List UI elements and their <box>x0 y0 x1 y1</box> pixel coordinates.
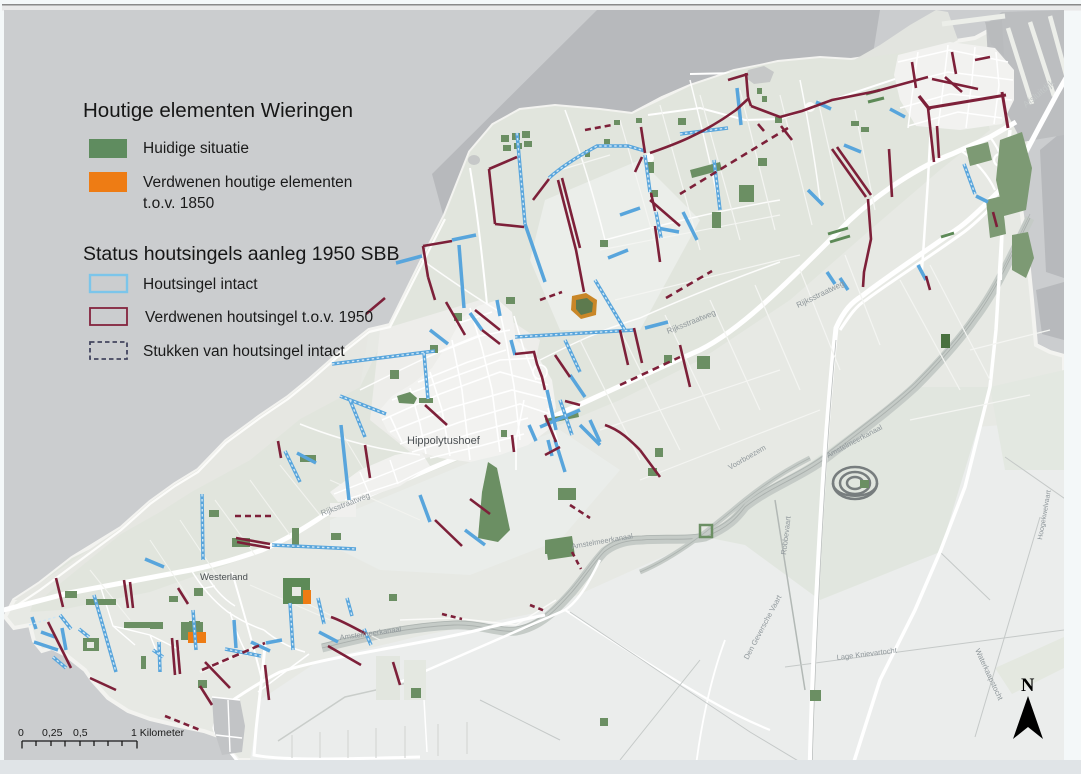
svg-text:Houtsingel intact: Houtsingel intact <box>143 276 258 293</box>
svg-text:Stukken van houtsingel intact: Stukken van houtsingel intact <box>143 343 345 360</box>
svg-text:0,5: 0,5 <box>73 727 88 739</box>
svg-text:t.o.v. 1850: t.o.v. 1850 <box>143 195 215 212</box>
svg-text:0: 0 <box>18 727 24 739</box>
svg-text:Status houtsingels aanleg 1950: Status houtsingels aanleg 1950 SBB <box>83 243 400 265</box>
svg-text:Houtige elementen Wieringen: Houtige elementen Wieringen <box>83 99 353 122</box>
svg-text:Westerland: Westerland <box>200 572 248 583</box>
svg-text:0,25: 0,25 <box>42 727 63 739</box>
svg-text:Huidige situatie: Huidige situatie <box>143 140 249 157</box>
svg-text:N: N <box>1021 676 1035 696</box>
svg-text:Verdwenen houtige elementen: Verdwenen houtige elementen <box>143 174 352 191</box>
svg-text:Hippolytushoef: Hippolytushoef <box>407 435 481 447</box>
svg-text:1 Kilometer: 1 Kilometer <box>131 727 185 739</box>
svg-text:Verdwenen houtsingel t.o.v. 19: Verdwenen houtsingel t.o.v. 1950 <box>145 309 373 326</box>
